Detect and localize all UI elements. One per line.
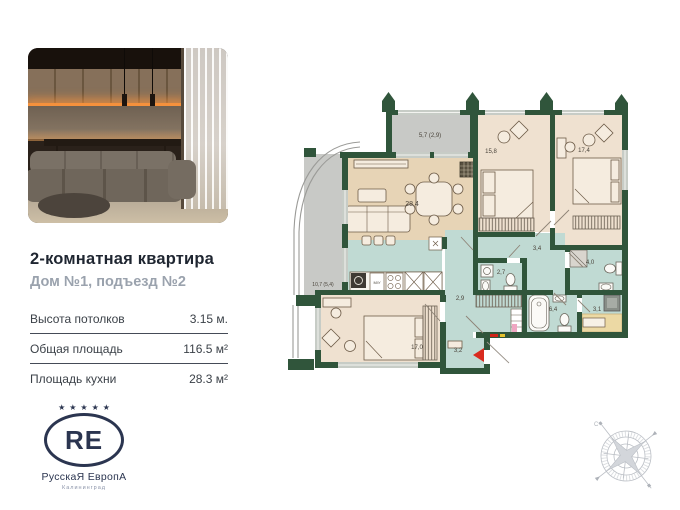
legend-mark-red xyxy=(490,334,498,337)
bar-stool xyxy=(374,236,383,245)
logo-brand-name: РусскаЯ ЕвропА xyxy=(28,471,140,483)
vent-ornament xyxy=(460,162,475,177)
spec-table: Высота потолков 3.15 м. Общая площадь 11… xyxy=(30,304,228,393)
washing-machine xyxy=(481,265,493,277)
room-label-wc: 2,7 xyxy=(497,270,506,276)
spec-label: Высота потолков xyxy=(30,312,125,326)
bed xyxy=(364,316,423,360)
logo-oval: RE xyxy=(44,413,124,467)
entry-cabinet xyxy=(448,341,462,348)
bar-stool xyxy=(362,236,371,245)
toilet xyxy=(616,262,622,275)
spec-row-total-area: Общая площадь 116.5 м² xyxy=(30,333,228,363)
room-label-entry: 3,2 xyxy=(454,348,463,354)
ottoman xyxy=(358,189,386,202)
bar-stool xyxy=(386,236,395,245)
dining-table xyxy=(416,182,452,216)
photo-pendant-lamp xyxy=(124,48,125,94)
photo-pouf xyxy=(38,193,110,218)
wardrobe xyxy=(479,218,534,231)
room-label-bathroom-main: 6,4 xyxy=(549,307,558,313)
floor-plan: М/У xyxy=(270,90,660,400)
apartment-photo xyxy=(28,48,228,223)
room-label-living: 28,4 xyxy=(405,201,419,208)
room-label-bedroom-bottom: 17,0 xyxy=(411,345,423,351)
photo-sofa-armrest xyxy=(168,160,196,199)
room-label-corridor: 2,9 xyxy=(456,296,465,302)
spec-value: 28.3 м² xyxy=(189,372,228,386)
page-title: 2-комнатная квартира xyxy=(30,250,228,269)
spec-value: 3.15 м. xyxy=(190,312,228,326)
apartment-info: 2-комнатная квартира Дом №1, подъезд №2 … xyxy=(30,250,228,393)
desk xyxy=(323,298,351,307)
spec-row-ceiling: Высота потолков 3.15 м. xyxy=(30,304,228,333)
spec-label: Площадь кухни xyxy=(30,372,116,386)
room-label-bathroom-right: 4,0 xyxy=(586,260,595,266)
room-label-storage: 3,1 xyxy=(593,307,602,313)
photo-table xyxy=(44,139,184,146)
logo-city: Калининград xyxy=(28,485,140,491)
wardrobe xyxy=(573,216,620,229)
room-label-hall: 3,4 xyxy=(533,246,542,252)
spec-label: Общая площадь xyxy=(30,342,123,356)
room-label-bedroom-top: 15,8 xyxy=(485,149,497,155)
bathtub xyxy=(529,295,549,331)
room-label-balcony-top: 5,7 (2,9) xyxy=(419,133,441,139)
logo-stars: ★★★★★ xyxy=(28,404,140,412)
kitchen-sink xyxy=(351,273,366,288)
compass-rose: С xyxy=(584,410,668,498)
living-sofa xyxy=(346,206,410,232)
page-subtitle: Дом №1, подъезд №2 xyxy=(30,274,228,290)
photo-pendant-lamp xyxy=(152,48,153,94)
compass-north-label: С xyxy=(594,422,599,428)
wardrobe xyxy=(476,295,522,307)
legend-mark-yellow xyxy=(500,334,505,337)
desk xyxy=(557,138,566,158)
logo-monogram: RE xyxy=(65,427,103,453)
spec-row-kitchen-area: Площадь кухни 28.3 м² xyxy=(30,363,228,393)
wardrobe xyxy=(423,306,437,360)
toilet xyxy=(558,326,571,332)
room-label-bedroom-right: 17,4 xyxy=(578,148,590,154)
stove xyxy=(386,273,403,291)
room-label-balcony-left: 10,7 (5,4) xyxy=(312,282,334,288)
listing-card: 2-комнатная квартира Дом №1, подъезд №2 … xyxy=(0,0,680,510)
spec-value: 116.5 м² xyxy=(183,342,228,356)
developer-logo: ★★★★★ RE РусскаЯ ЕвропА Калининград xyxy=(28,404,140,491)
photo-cabinets xyxy=(28,69,184,104)
shelf-item xyxy=(512,324,517,332)
kitchen-unit-label: М/У xyxy=(374,280,381,285)
